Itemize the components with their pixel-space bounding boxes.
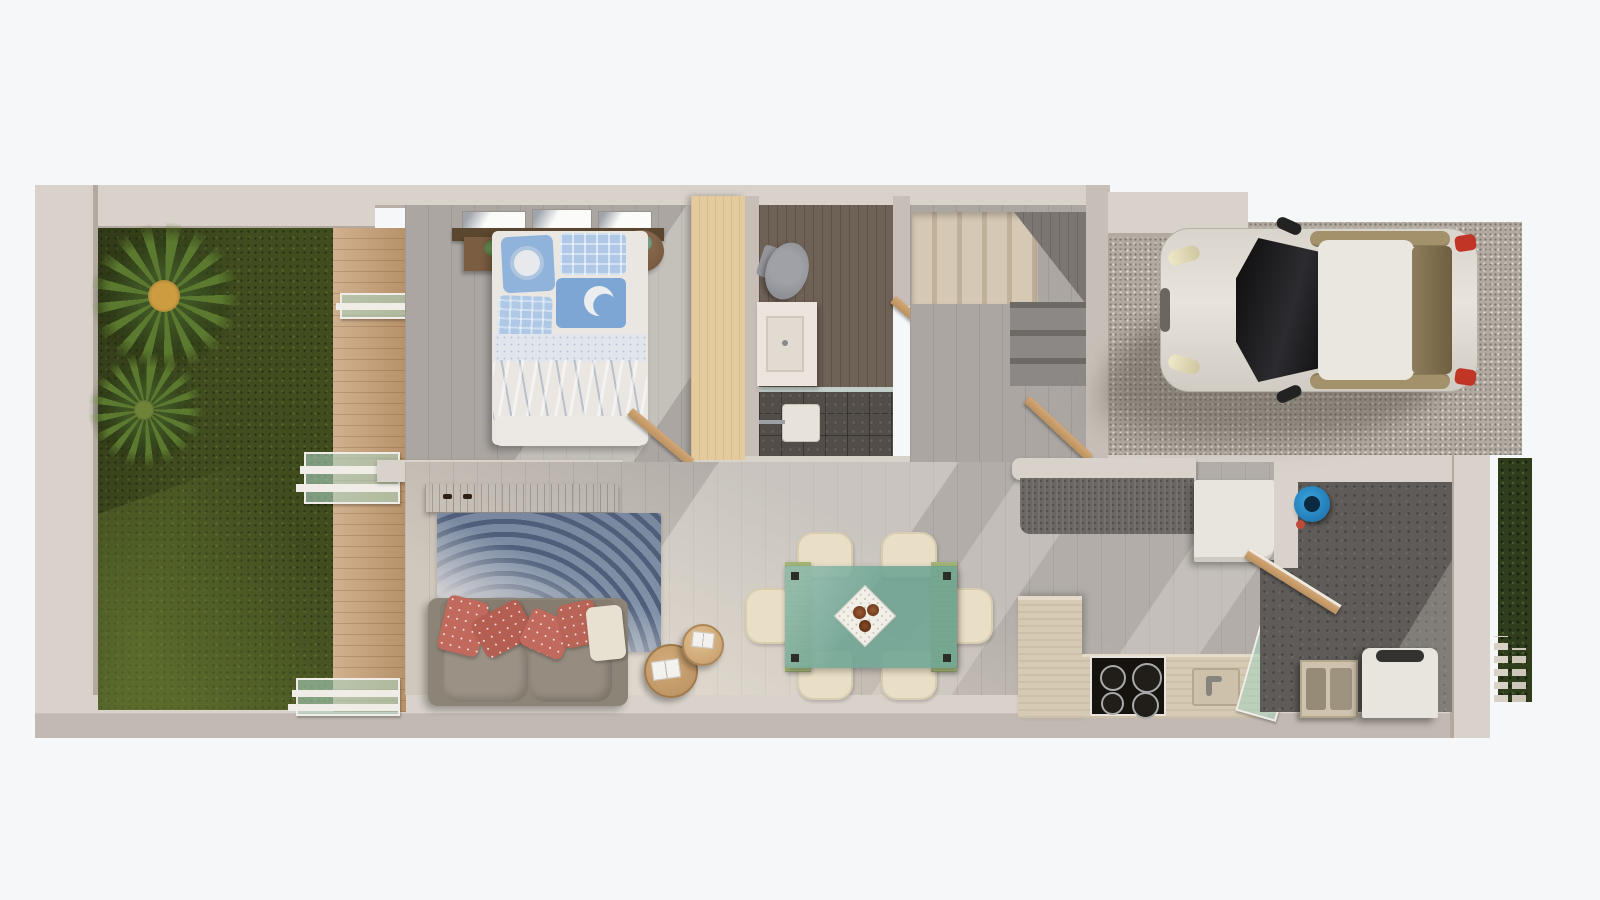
car-rear-glass bbox=[1412, 246, 1452, 374]
burner-4 bbox=[1132, 692, 1159, 719]
kitchen-faucet-arm bbox=[1206, 676, 1222, 682]
fridge bbox=[1194, 480, 1274, 562]
wall-picture-2 bbox=[532, 209, 592, 230]
white-car bbox=[1158, 226, 1480, 394]
wall-right-lower bbox=[1450, 455, 1490, 738]
car-taillight-top bbox=[1454, 234, 1477, 253]
sliding-door-mid-frame2 bbox=[296, 484, 400, 492]
palm-core bbox=[148, 280, 180, 312]
shower-glass-screen bbox=[759, 387, 893, 392]
console-handle-2 bbox=[463, 494, 472, 499]
dining-set bbox=[745, 528, 995, 704]
car-windshield bbox=[1236, 238, 1322, 382]
sliding-door-bottom-frame2 bbox=[288, 704, 398, 711]
sliding-door-bottom-frame1 bbox=[292, 690, 400, 697]
washer-lid bbox=[1376, 650, 1424, 662]
sliding-door-upper-frame bbox=[336, 303, 410, 310]
laundry-basin-1 bbox=[1306, 668, 1326, 710]
shower-floor bbox=[759, 391, 893, 458]
sun-motif bbox=[514, 250, 540, 276]
pillow-plaid-small bbox=[497, 295, 552, 339]
bowl-2 bbox=[867, 604, 879, 616]
bed-foot-sheet bbox=[496, 416, 644, 446]
kitchen-tall-cabinet bbox=[1018, 596, 1082, 718]
laundry-basin-2 bbox=[1330, 668, 1352, 710]
shower-grab-bar bbox=[759, 420, 785, 424]
sofa bbox=[428, 598, 628, 708]
car-grille bbox=[1160, 288, 1170, 332]
bowl-1 bbox=[853, 606, 866, 619]
open-book-2 bbox=[691, 631, 715, 649]
wall-left bbox=[35, 185, 98, 738]
console-handle-1 bbox=[443, 494, 452, 499]
bowl-3 bbox=[859, 620, 871, 632]
wall-top-garden bbox=[98, 185, 375, 230]
kitchen-peninsula-top bbox=[1012, 458, 1196, 480]
dining-chair-left bbox=[745, 588, 789, 644]
moon-motif bbox=[584, 286, 614, 316]
car-taillight-bottom bbox=[1454, 368, 1477, 387]
bucket-center bbox=[1304, 496, 1320, 512]
bed-band bbox=[494, 334, 646, 362]
kitchen-sink bbox=[1192, 668, 1240, 706]
kitchen-peninsula-front bbox=[1020, 478, 1194, 534]
stairs-upper-flight bbox=[912, 212, 1038, 304]
runner-clamp-2 bbox=[943, 572, 951, 580]
palm-core-small bbox=[134, 400, 154, 420]
burner-2 bbox=[1132, 663, 1162, 693]
runner-clamp-3 bbox=[791, 654, 799, 662]
cooktop bbox=[1090, 656, 1166, 716]
burner-1 bbox=[1100, 665, 1126, 691]
patio-left-wall bbox=[1274, 482, 1298, 568]
bucket-handle bbox=[1296, 520, 1305, 529]
slat-fence-2 bbox=[1512, 648, 1526, 702]
wall-garage-left bbox=[1086, 185, 1110, 462]
car-roof bbox=[1318, 240, 1414, 380]
runner-clamp-1 bbox=[791, 572, 799, 580]
shower-tray bbox=[782, 404, 820, 442]
cream-pillow bbox=[585, 604, 626, 661]
bed-blanket-blue bbox=[493, 360, 647, 422]
stairs-lower-flight bbox=[1010, 302, 1086, 386]
burner-3 bbox=[1101, 692, 1124, 715]
slat-fence bbox=[1494, 636, 1508, 702]
open-book-1 bbox=[651, 658, 681, 681]
bath-wall-right bbox=[893, 196, 910, 306]
tv-console bbox=[425, 484, 618, 512]
floor-plan-render bbox=[0, 0, 1600, 900]
wardrobe bbox=[691, 196, 745, 462]
runner-clamp-4 bbox=[943, 654, 951, 662]
vanity-faucet bbox=[782, 340, 788, 346]
pillow-plaid-top bbox=[560, 233, 626, 275]
